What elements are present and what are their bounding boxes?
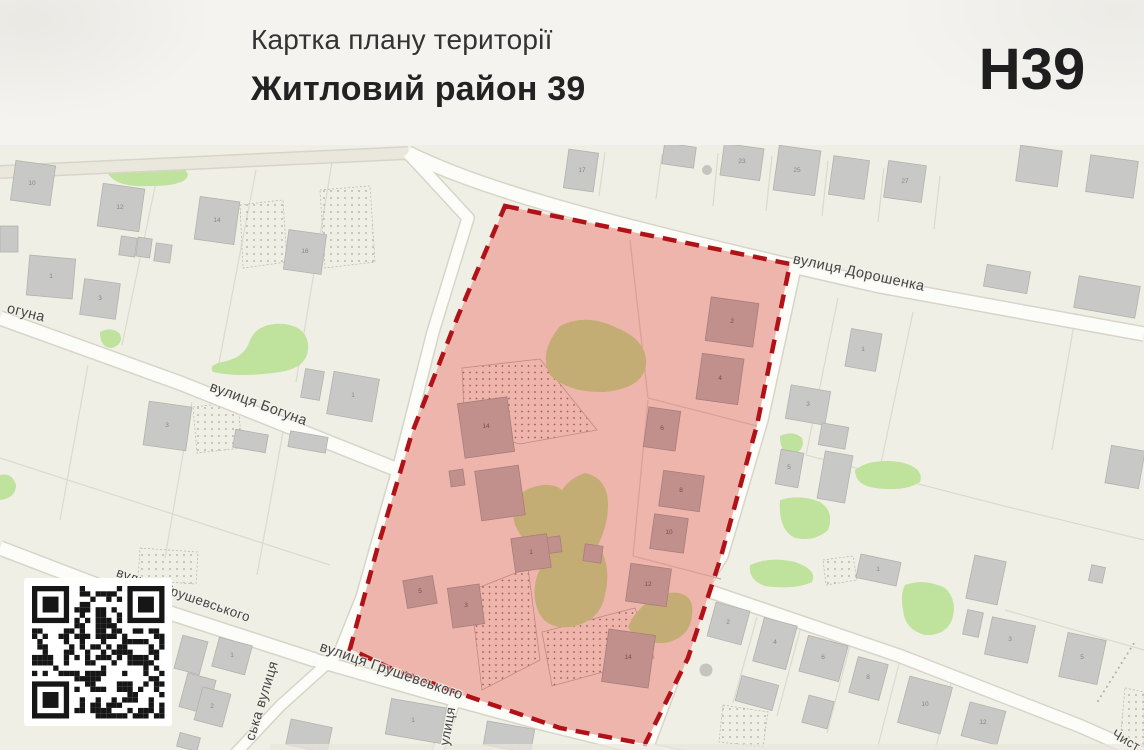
building-number: 12 (979, 719, 987, 726)
header: Картка плану території Житловий район 39… (0, 0, 1144, 145)
building-number: 2 (210, 703, 214, 710)
building-number: 5 (418, 588, 422, 595)
building-number: 3 (165, 422, 169, 429)
building-number: 14 (482, 423, 490, 430)
building-number: 10 (921, 701, 929, 708)
building-number: 12 (644, 581, 652, 588)
building-number: 1 (351, 392, 355, 399)
building-number: 12 (116, 204, 124, 211)
building-number: 2 (726, 619, 730, 626)
building-number: 8 (866, 674, 870, 681)
plan-card: Картка плану території Житловий район 39… (0, 0, 1144, 750)
qr-code (24, 578, 172, 726)
building-number: 1 (529, 549, 533, 556)
building-number: 8 (679, 487, 683, 494)
building-number: 1 (230, 652, 234, 659)
building-number: 5 (1080, 654, 1084, 661)
district-title: Житловий район 39 (251, 70, 585, 109)
building-number: 14 (624, 654, 632, 661)
building-number: 4 (718, 375, 722, 382)
building-number: 1 (49, 273, 53, 280)
building-number: 16 (301, 248, 309, 255)
building-number: 25 (793, 167, 801, 174)
building-number: 17 (578, 167, 586, 174)
building-number: 3 (464, 602, 468, 609)
building-number: 10 (665, 529, 673, 536)
building-number: 14 (213, 217, 221, 224)
building-number: 3 (1008, 636, 1012, 643)
building-number: 27 (901, 178, 909, 185)
zone-code: Н39 (962, 36, 1102, 103)
building-number: 1 (876, 566, 880, 573)
building-number: 2 (730, 318, 734, 325)
building-number: 10 (28, 180, 36, 187)
building-number: 4 (773, 639, 777, 646)
building-number: 5 (787, 464, 791, 471)
card-type-label: Картка плану території (251, 24, 553, 56)
building-number: 3 (806, 401, 810, 408)
building-number: 1 (861, 346, 865, 353)
building-number: 6 (660, 425, 664, 432)
building-number: 3 (98, 295, 102, 302)
bottom-shadow-band (270, 744, 1144, 750)
building-number: 6 (821, 654, 825, 661)
territory-map: вулиця Дорошенкавулиця Богунаогунавулиця… (0, 145, 1144, 750)
building-number: 1 (411, 717, 415, 724)
building-number: 23 (738, 158, 746, 165)
